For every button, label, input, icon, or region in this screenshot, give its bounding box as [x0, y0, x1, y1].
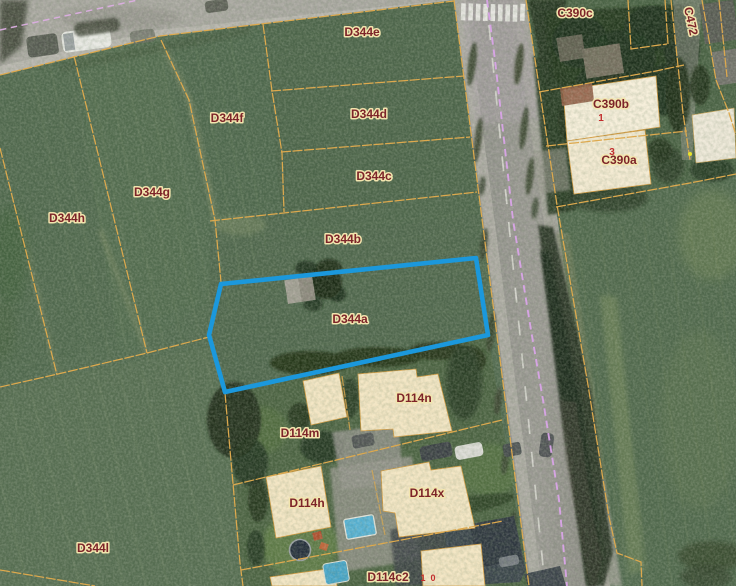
svg-text:D344l: D344l — [77, 541, 109, 555]
svg-text:D344b: D344b — [325, 232, 361, 246]
svg-text:C390c: C390c — [557, 6, 593, 20]
svg-text:C390b: C390b — [593, 97, 629, 111]
svg-text:1: 1 — [598, 113, 604, 124]
svg-text:D344a: D344a — [332, 312, 368, 326]
svg-text:1: 1 — [420, 573, 425, 583]
svg-text:D344d: D344d — [351, 107, 387, 121]
svg-text:D344g: D344g — [134, 185, 170, 199]
svg-text:3: 3 — [609, 147, 615, 158]
svg-text:C390a: C390a — [601, 153, 637, 167]
svg-text:D344e: D344e — [344, 25, 380, 39]
svg-text:D114m: D114m — [281, 426, 320, 440]
svg-text:D114h: D114h — [289, 496, 324, 510]
svg-text:D344h: D344h — [49, 211, 85, 225]
svg-text:0: 0 — [430, 573, 435, 583]
svg-text:D114c2: D114c2 — [367, 570, 409, 584]
svg-text:D344f: D344f — [211, 111, 245, 125]
svg-text:D344c: D344c — [356, 169, 392, 183]
svg-text:D114x: D114x — [410, 486, 445, 500]
svg-text:D114n: D114n — [396, 391, 431, 405]
